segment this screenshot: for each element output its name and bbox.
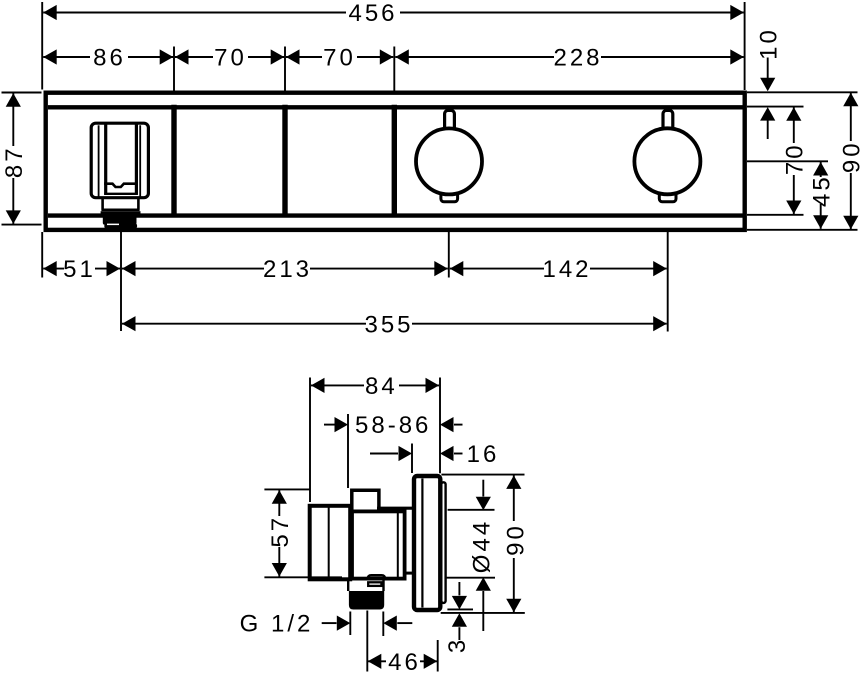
- svg-text:10: 10: [755, 27, 782, 60]
- svg-text:84: 84: [365, 373, 398, 400]
- svg-text:355: 355: [364, 311, 413, 338]
- svg-text:86: 86: [93, 45, 126, 72]
- svg-text:456: 456: [348, 0, 397, 27]
- svg-text:57: 57: [267, 515, 294, 548]
- svg-text:3: 3: [444, 637, 471, 653]
- svg-text:90: 90: [502, 523, 529, 556]
- svg-text:51: 51: [63, 256, 96, 283]
- svg-text:142: 142: [542, 256, 591, 283]
- svg-text:90: 90: [838, 140, 864, 173]
- svg-text:Ø44: Ø44: [469, 519, 496, 573]
- svg-text:46: 46: [388, 649, 421, 675]
- svg-text:213: 213: [263, 256, 312, 283]
- svg-text:70: 70: [214, 45, 247, 72]
- svg-text:70: 70: [323, 45, 356, 72]
- svg-text:16: 16: [467, 441, 500, 468]
- svg-text:228: 228: [553, 45, 602, 72]
- svg-text:58-86: 58-86: [355, 412, 431, 439]
- svg-text:45: 45: [808, 174, 835, 207]
- svg-text:87: 87: [1, 145, 28, 178]
- svg-text:G 1/2: G 1/2: [240, 611, 314, 638]
- svg-text:70: 70: [781, 142, 808, 175]
